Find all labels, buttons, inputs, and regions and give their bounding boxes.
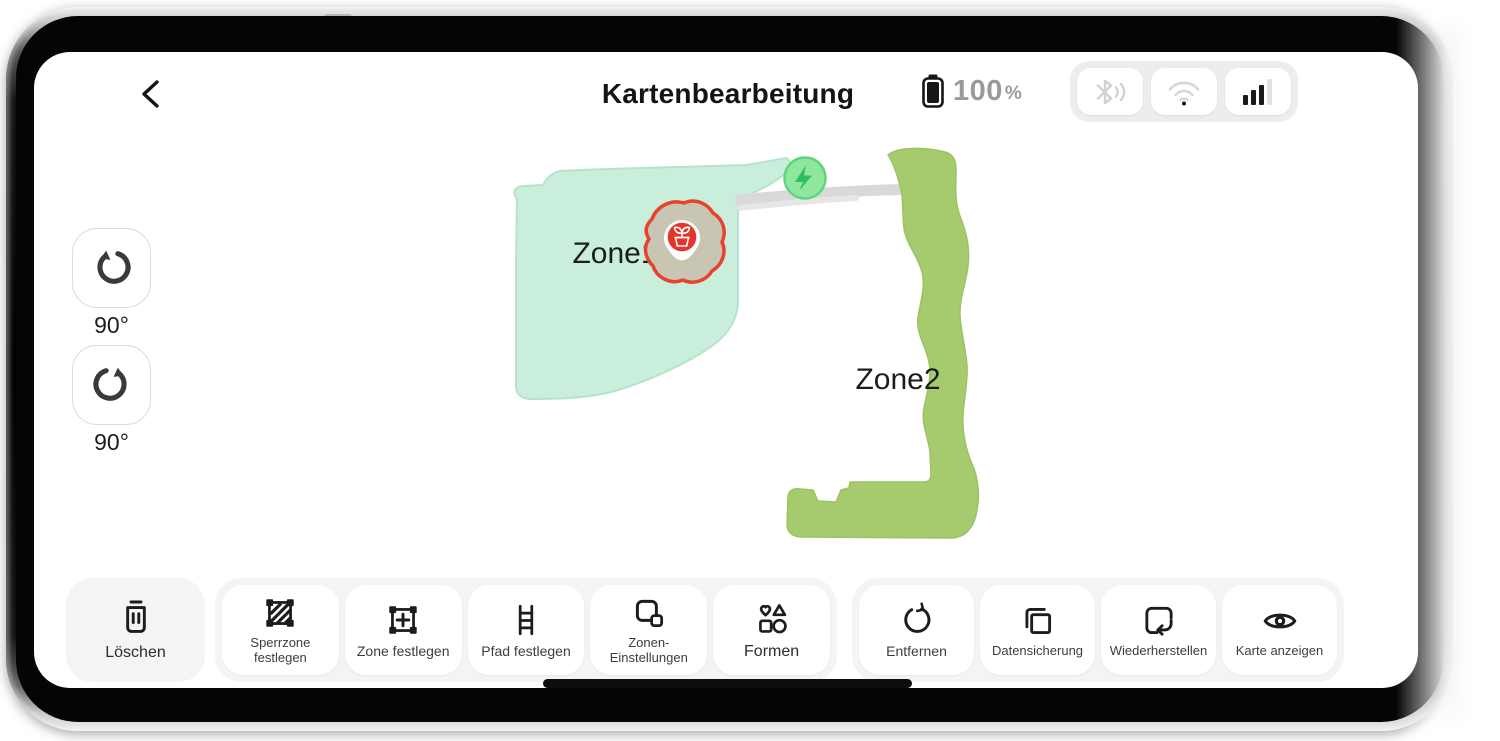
- bluetooth-button[interactable]: [1077, 68, 1143, 115]
- zone-settings-icon: [630, 594, 668, 632]
- shapes-button[interactable]: Formen: [713, 585, 830, 675]
- tool-label: Entfernen: [861, 643, 972, 659]
- page-title: Kartenbearbeitung: [528, 78, 928, 110]
- zone-settings-button[interactable]: Zonen-Einstellungen: [590, 585, 707, 675]
- tool-label: Zonen-Einstellungen: [592, 636, 705, 666]
- charging-station[interactable]: [785, 158, 826, 199]
- battery-percent: 100: [953, 75, 1003, 108]
- signal-bars-icon: [1239, 76, 1277, 108]
- wifi-button[interactable]: [1151, 68, 1217, 115]
- rotate-ccw-button[interactable]: [72, 228, 151, 308]
- set-path-button[interactable]: Pfad festlegen: [468, 585, 585, 675]
- no-go-zone-button[interactable]: Sperrzone festlegen: [222, 585, 339, 675]
- tool-label: Wiederherstellen: [1103, 644, 1214, 659]
- copy-icon: [1019, 602, 1057, 640]
- restore-button[interactable]: Wiederherstellen: [1101, 585, 1216, 675]
- tool-label: Sperrzone festlegen: [224, 636, 337, 666]
- rotate-cw-label: 90°: [72, 429, 151, 456]
- wifi-icon: [1164, 76, 1204, 108]
- rotate-cw-button[interactable]: [72, 345, 151, 425]
- tool-label: Löschen: [72, 644, 199, 662]
- map-tools-group: Entfernen Datensicherung Wiederherstelle…: [852, 578, 1344, 682]
- tool-label: Formen: [715, 643, 828, 661]
- phone-mockup: Zone1 Zone2 Kartenbearbeitung: [0, 0, 1500, 741]
- restore-icon: [1140, 602, 1178, 640]
- rotate-ccw-label: 90°: [72, 312, 151, 339]
- show-map-button[interactable]: Karte anzeigen: [1222, 585, 1337, 675]
- tool-label: Zone festlegen: [347, 643, 460, 659]
- tool-label: Karte anzeigen: [1224, 644, 1335, 659]
- battery-indicator: 100 %: [922, 74, 1022, 108]
- zone2-area[interactable]: [787, 148, 978, 538]
- shapes-icon: [752, 599, 792, 639]
- signal-button[interactable]: [1225, 68, 1291, 115]
- battery-icon: [922, 74, 944, 108]
- connectivity-status-group: [1070, 61, 1298, 122]
- battery-unit: %: [1005, 83, 1022, 105]
- rotate-ccw-icon: [89, 245, 135, 291]
- trash-icon: [115, 597, 157, 637]
- bluetooth-icon: [1090, 76, 1130, 108]
- back-button[interactable]: [132, 76, 168, 114]
- reset-circle-icon: [898, 601, 936, 639]
- tool-label: Datensicherung: [982, 644, 1093, 659]
- plant-marker[interactable]: [646, 201, 725, 282]
- eye-icon: [1260, 602, 1300, 640]
- zone2-label: Zone2: [855, 363, 940, 396]
- add-zone-button[interactable]: Zone festlegen: [345, 585, 462, 675]
- home-indicator[interactable]: [543, 679, 912, 688]
- remove-button[interactable]: Entfernen: [859, 585, 974, 675]
- tool-label: Pfad festlegen: [470, 643, 583, 659]
- add-zone-icon: [384, 601, 422, 639]
- zone-tools-group: Sperrzone festlegen Zone festlegen Pfad …: [215, 578, 837, 682]
- no-zone-icon: [261, 594, 299, 632]
- ladder-path-icon: [507, 601, 545, 639]
- rotate-cw-icon: [89, 362, 135, 408]
- backup-button[interactable]: Datensicherung: [980, 585, 1095, 675]
- chevron-left-icon: [138, 79, 162, 109]
- delete-button[interactable]: Löschen: [66, 578, 205, 682]
